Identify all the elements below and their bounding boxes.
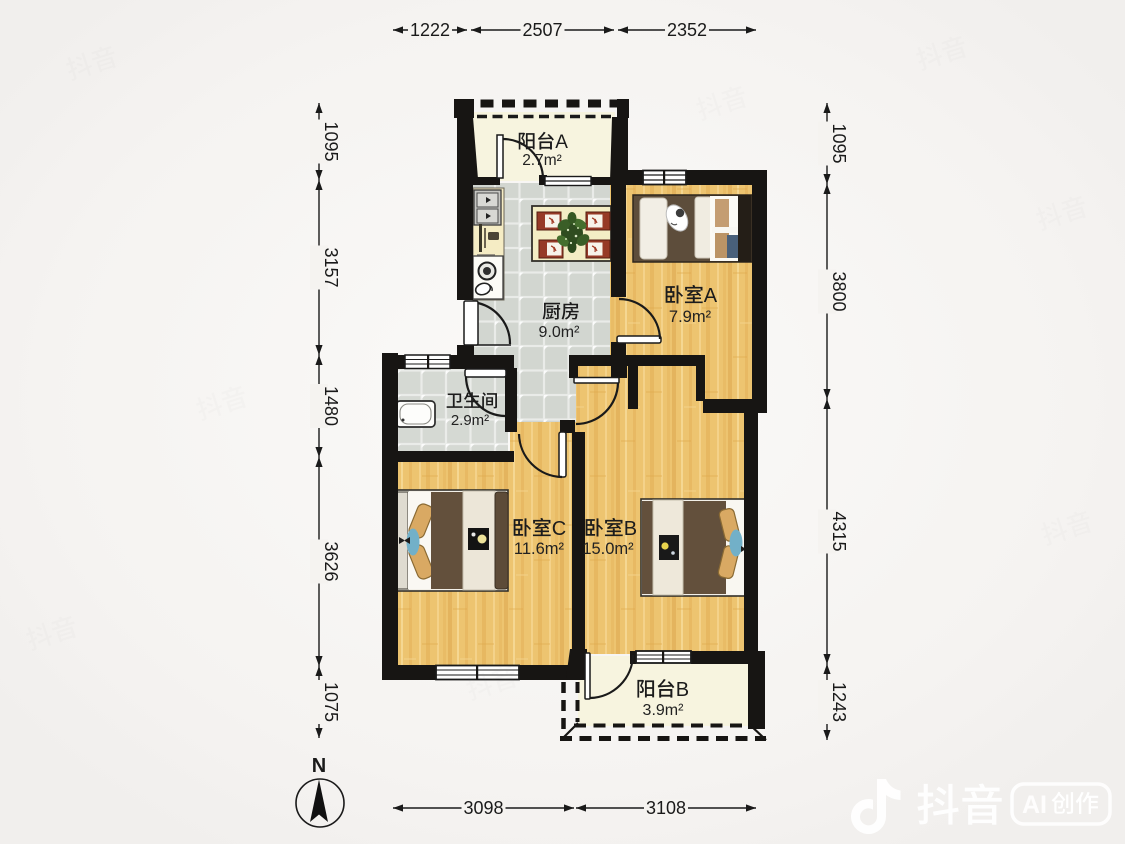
svg-text:1243: 1243	[829, 682, 849, 722]
svg-text:3157: 3157	[321, 247, 341, 287]
svg-text:N: N	[312, 755, 326, 777]
svg-text:1222: 1222	[410, 20, 450, 40]
svg-text:2507: 2507	[522, 20, 562, 40]
svg-text:7.9m²: 7.9m²	[669, 308, 712, 326]
svg-text:3626: 3626	[321, 541, 341, 581]
svg-text:3800: 3800	[829, 271, 849, 311]
svg-text:4315: 4315	[829, 511, 849, 551]
svg-text:AI: AI	[1022, 791, 1047, 819]
svg-text:1480: 1480	[321, 386, 341, 426]
svg-text:2.9m²: 2.9m²	[451, 412, 489, 429]
svg-text:9.0m²: 9.0m²	[539, 324, 581, 341]
svg-text:C: C	[552, 518, 566, 540]
svg-text:A: A	[555, 132, 568, 153]
svg-text:B: B	[676, 679, 689, 701]
svg-text:1075: 1075	[321, 682, 341, 722]
svg-text:3098: 3098	[463, 798, 503, 818]
svg-text:1095: 1095	[321, 121, 341, 161]
svg-text:B: B	[624, 518, 637, 540]
svg-text:11.6m²: 11.6m²	[514, 540, 565, 558]
svg-text:3108: 3108	[646, 798, 686, 818]
svg-text:1095: 1095	[829, 123, 849, 163]
svg-text:15.0m²: 15.0m²	[582, 540, 634, 558]
svg-text:3.9m²: 3.9m²	[643, 702, 685, 719]
svg-text:2.7m²: 2.7m²	[522, 152, 562, 169]
svg-text:2352: 2352	[667, 20, 707, 40]
svg-text:A: A	[704, 285, 718, 307]
